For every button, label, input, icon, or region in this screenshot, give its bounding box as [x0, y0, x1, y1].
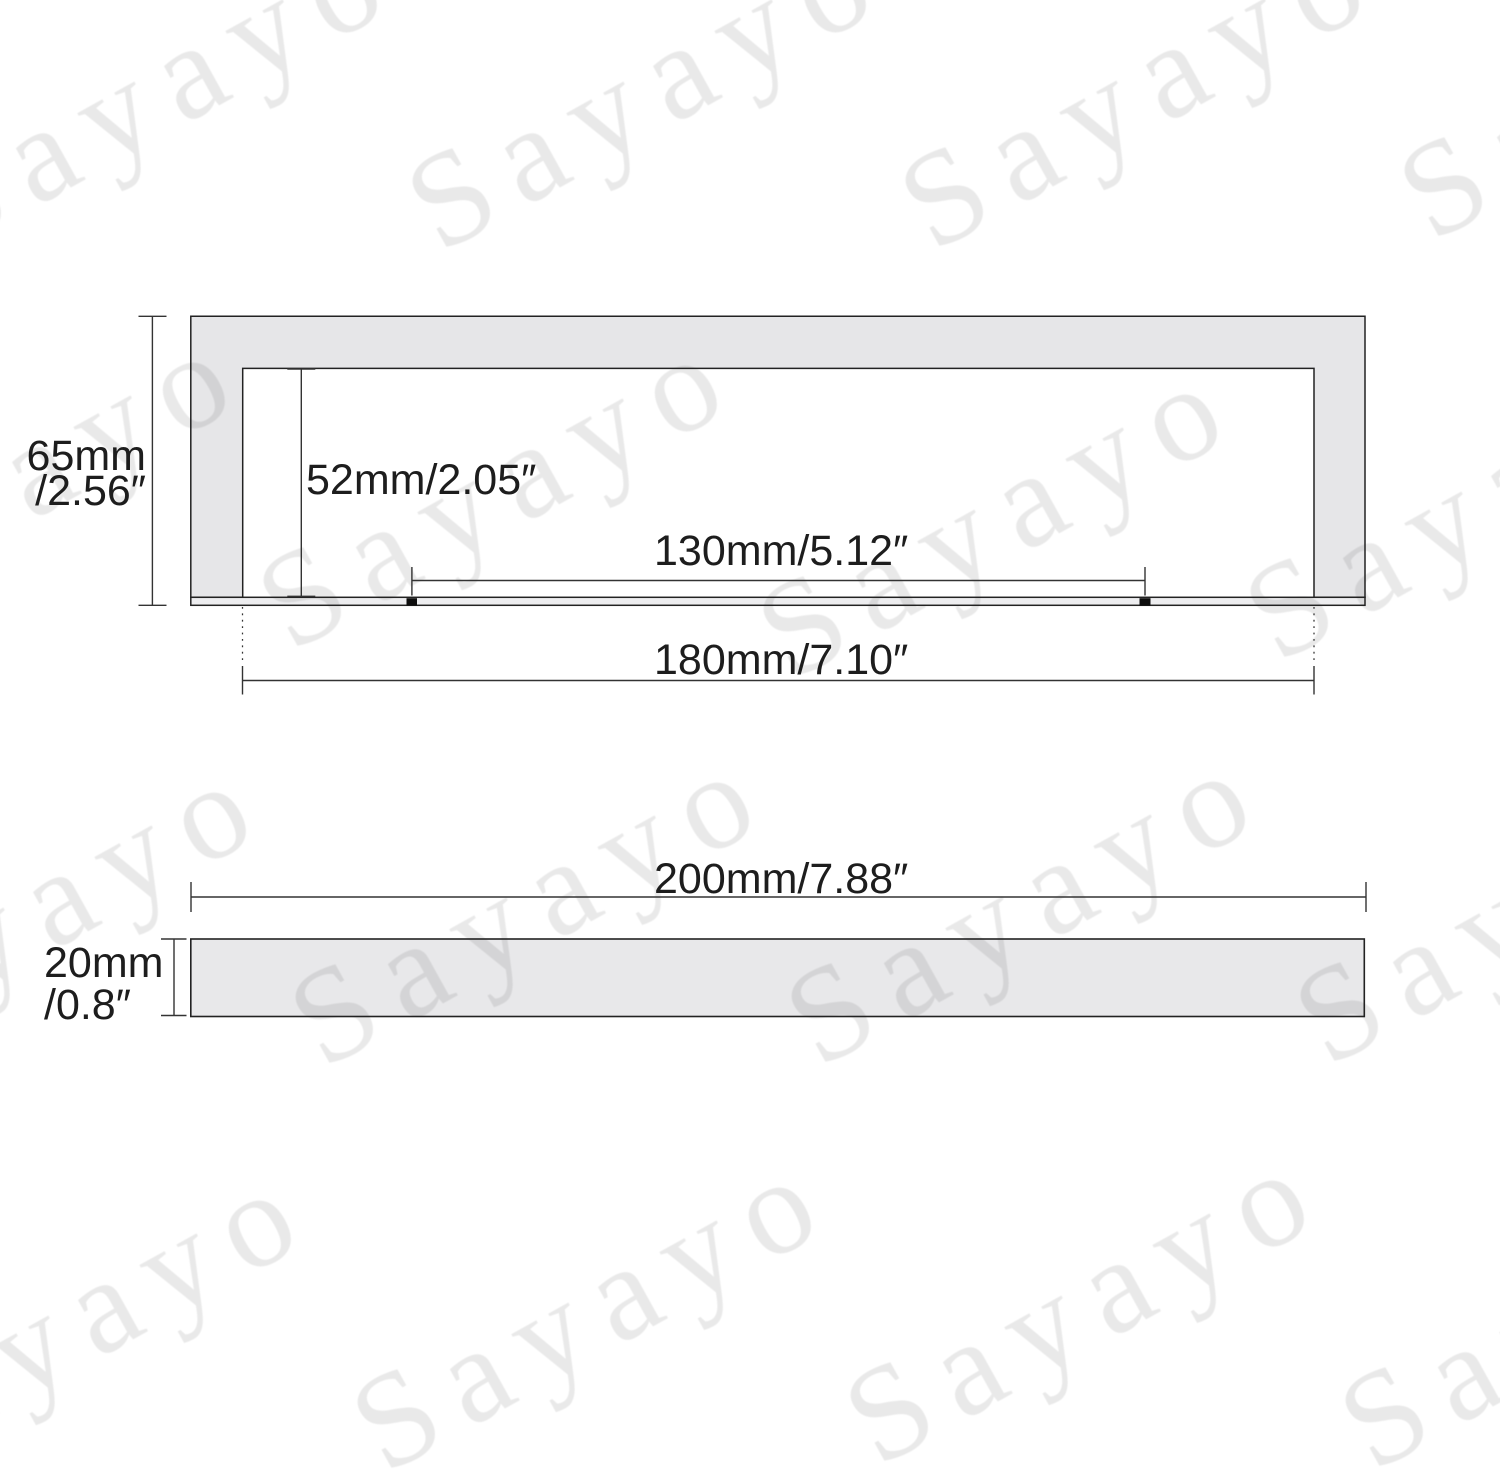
svg-text:20mm: 20mm [44, 939, 163, 987]
svg-text:/0.8″: /0.8″ [44, 981, 131, 1029]
svg-text:52mm/2.05″: 52mm/2.05″ [306, 456, 536, 504]
svg-text:/2.56″: /2.56″ [35, 467, 146, 515]
svg-text:180mm/7.10″: 180mm/7.10″ [654, 636, 908, 684]
svg-text:130mm/5.12″: 130mm/5.12″ [654, 527, 908, 575]
svg-text:200mm/7.88″: 200mm/7.88″ [654, 855, 908, 903]
